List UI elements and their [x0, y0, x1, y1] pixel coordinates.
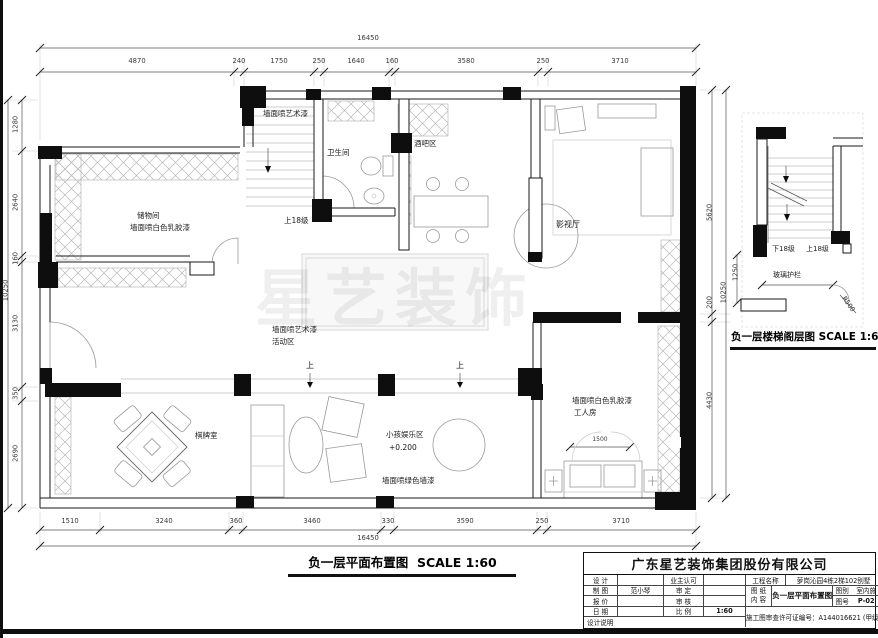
tb-label: 审 核: [664, 596, 704, 607]
dim-left-3: 3130: [13, 303, 20, 343]
type-label: 图别: [833, 586, 851, 597]
main-title-underline: [288, 574, 516, 577]
no-label: 图号: [833, 596, 851, 607]
main-stairs: [246, 107, 314, 206]
label-up-2: 上: [456, 361, 464, 371]
tb-label: 比 例: [664, 607, 704, 618]
mahjong-table: [113, 405, 192, 488]
dim-left-total: 10250: [3, 270, 10, 310]
dim-worker-bed: 1500: [580, 437, 620, 443]
sheet-label-2: 内 容: [751, 596, 766, 605]
label-green-paint: 墙面喷绿色墙漆: [382, 476, 435, 485]
dim-left-4: 350: [13, 373, 20, 413]
tb-label: 日 期: [584, 607, 618, 618]
label-cinema: 影视厅: [556, 220, 580, 230]
label-chess: 棋牌室: [195, 431, 218, 440]
dim-top-4: 1640: [336, 58, 376, 65]
tb-label: 制 图: [584, 586, 618, 597]
label-storage: 储物间: [137, 211, 160, 220]
dim-left-5: 2690: [13, 433, 20, 473]
label-bathroom: 卫生间: [327, 148, 350, 157]
tb-value: [618, 607, 664, 618]
dim-right-total: 10250: [721, 272, 728, 312]
storage-step-wall: [190, 262, 214, 275]
dim-top-8: 3710: [600, 58, 640, 65]
dim-top-6: 3580: [446, 58, 486, 65]
step-lines: [121, 373, 518, 393]
dim-right-2: 4430: [707, 380, 714, 420]
label-bar: 酒吧区: [414, 139, 437, 148]
stair-dim-1250: 1250: [733, 252, 740, 292]
label-stairs-up: 上18级: [284, 216, 309, 225]
tb-label: 设 计: [584, 575, 618, 586]
tb-scale-value: 1:60: [704, 607, 746, 618]
stair-down-label: 下18级: [772, 245, 795, 254]
type-value: 室内施: [851, 586, 878, 597]
dim-bottom-7: 3710: [601, 518, 641, 525]
label-up-1: 上: [306, 361, 314, 371]
dim-left-1: 2640: [13, 182, 20, 222]
bathroom-west-wall: [314, 99, 323, 201]
company-name: 广东星艺装饰集团股份有限公司: [584, 553, 875, 575]
bathroom-east-wall: [399, 99, 409, 250]
stair-up-label: 上18级: [806, 245, 829, 254]
cinema-partition: [529, 178, 542, 258]
dim-bottom-4: 330: [368, 518, 408, 525]
design-note-label: 设计说明: [584, 617, 746, 627]
dim-bottom-0: 1510: [50, 518, 90, 525]
main-plan-scale: SCALE 1:60: [417, 555, 497, 570]
dim-bottom-1: 3240: [144, 518, 184, 525]
title-block-left-table: 设 计 业主认可 制 图 范小琴 审 定 报 价 审 核 日 期 比: [584, 575, 746, 627]
dim-top-total: 16450: [348, 35, 388, 42]
permit-number: 施工图审查许可证编号：A144016621 (甲级): [746, 607, 878, 628]
bathroom-fixtures: [322, 156, 393, 208]
dim-bottom-5: 3590: [445, 518, 485, 525]
main-plan-title: 负一层平面布置图 SCALE 1:60: [295, 552, 510, 571]
tb-value: [618, 575, 664, 586]
label-storage-paint: 墙面喷白色乳胶漆: [130, 223, 190, 232]
title-block-right-table: 工程名称 萝岗沁园4栋2梯102别墅 图 纸 内 容 负一层平面布置图 图别 室…: [746, 575, 878, 627]
stair-title-underline: [730, 347, 876, 350]
dim-top-1: 240: [219, 58, 259, 65]
dim-top-2: 1750: [259, 58, 299, 65]
label-activity-paint: 墙面喷艺术漆: [272, 325, 317, 334]
label-kids-level: +0.200: [389, 443, 417, 452]
kids-furniture: [289, 397, 485, 483]
label-worker: 工人房: [574, 408, 597, 417]
dim-left-0: 1280: [13, 104, 20, 144]
drawing-sheet: { "watermark": "星艺装饰", "plan": { "title"…: [0, 0, 878, 638]
tb-value: 范小琴: [618, 586, 664, 597]
bar-furniture: [414, 178, 488, 243]
dim-bottom-6: 250: [522, 518, 562, 525]
dim-left-2: 160: [13, 238, 20, 278]
no-value: P-02: [851, 596, 878, 607]
project-label: 工程名称: [746, 575, 786, 586]
label-kids: 小孩娱乐区: [386, 430, 424, 439]
sheet-content-value: 负一层平面布置图: [772, 586, 833, 607]
dim-bottom-total: 16450: [348, 535, 388, 542]
sheet-label-1: 图 纸: [751, 587, 766, 596]
label-art-paint-top: 墙面喷艺术漆: [263, 109, 308, 118]
tb-label: 报 价: [584, 596, 618, 607]
title-block: 广东星艺装饰集团股份有限公司 设 计 业主认可 制 图 范小琴 审 定 报 价 …: [583, 552, 876, 629]
tb-label: 业主认可: [664, 575, 704, 586]
tb-value: [704, 596, 746, 607]
tb-value: [704, 575, 746, 586]
sofa: [251, 405, 284, 497]
stair-plan-title-text: 负一层楼梯阁层图: [731, 331, 815, 343]
stair-plan-title: 负一层楼梯阁层图 SCALE 1:60: [731, 329, 877, 344]
glass-rail-label: 玻璃护栏: [773, 271, 801, 280]
tb-label: 审 定: [664, 586, 704, 597]
stair-plan-scale: SCALE 1:60: [819, 331, 878, 343]
label-worker-paint: 墙面喷白色乳胶漆: [572, 396, 632, 405]
tb-value: [704, 586, 746, 597]
dim-right-0: 5620: [707, 192, 714, 232]
sheet-content-label: 图 纸 内 容: [746, 586, 772, 607]
label-activity: 活动区: [272, 337, 295, 346]
dim-bottom-3: 3460: [292, 518, 332, 525]
main-plan-title-text: 负一层平面布置图: [308, 555, 408, 570]
tb-value: [618, 596, 664, 607]
dim-right-1: 200: [707, 282, 714, 322]
dim-top-0: 4870: [117, 58, 157, 65]
dim-top-5: 160: [372, 58, 412, 65]
dim-bottom-2: 360: [216, 518, 256, 525]
dim-top-7: 250: [523, 58, 563, 65]
dim-top-3: 250: [299, 58, 339, 65]
project-value: 萝岗沁园4栋2梯102别墅: [786, 575, 878, 586]
